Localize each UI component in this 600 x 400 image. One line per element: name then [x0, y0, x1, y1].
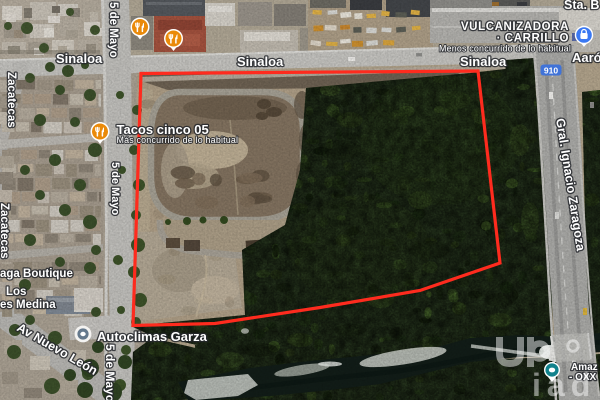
svg-text:Más concurrido de lo habitual: Más concurrido de lo habitual	[117, 135, 239, 145]
svg-text:Autoclimas Garza: Autoclimas Garza	[97, 329, 208, 344]
svg-text:Zacatecas: Zacatecas	[5, 72, 17, 128]
svg-text:Sinaloa: Sinaloa	[460, 54, 507, 69]
svg-text:es Medina: es Medina	[0, 299, 56, 311]
svg-text:iad: iad	[532, 367, 596, 400]
svg-text:5 de Mayo: 5 de Mayo	[109, 162, 121, 215]
svg-text:Los: Los	[6, 286, 26, 298]
svg-text:Aaró: Aaró	[572, 50, 600, 65]
svg-text:910: 910	[544, 65, 558, 75]
svg-text:Sinaloa: Sinaloa	[56, 51, 103, 66]
svg-text:VULCANIZADORA: VULCANIZADORA	[461, 21, 569, 33]
svg-text:Zacatecas: Zacatecas	[0, 203, 10, 259]
svg-text:5 de Mayo: 5 de Mayo	[107, 2, 119, 58]
svg-text:aga Boutique: aga Boutique	[0, 268, 73, 280]
svg-text:Menos concurrido de lo habitua: Menos concurrido de lo habitual	[439, 44, 571, 54]
svg-text:Sta. B: Sta. B	[564, 0, 599, 12]
svg-text:Sinaloa: Sinaloa	[237, 54, 284, 69]
svg-text:5 de Mayo: 5 de Mayo	[103, 344, 117, 400]
